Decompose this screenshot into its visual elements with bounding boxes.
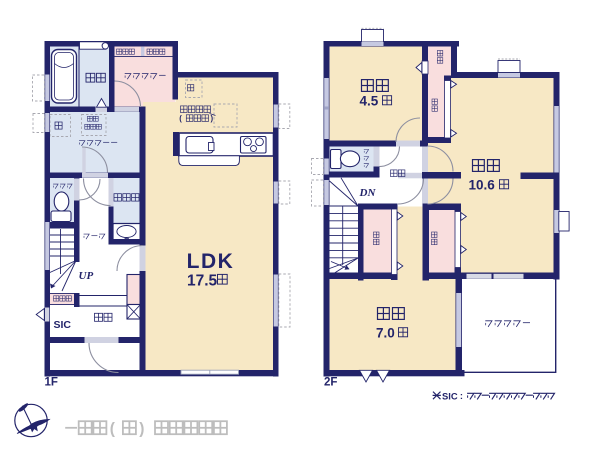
svg-text:2F: 2F bbox=[324, 377, 337, 389]
svg-text:1F: 1F bbox=[45, 377, 58, 389]
svg-text:UP: UP bbox=[79, 270, 94, 282]
svg-text:7.0: 7.0 bbox=[376, 326, 395, 341]
svg-text::: : bbox=[460, 390, 463, 401]
svg-text:(: ( bbox=[179, 114, 182, 123]
svg-text:LDK: LDK bbox=[187, 250, 235, 273]
svg-text:): ) bbox=[211, 114, 214, 123]
svg-text:SIC: SIC bbox=[54, 319, 72, 331]
svg-text:(: ( bbox=[110, 421, 116, 438]
svg-text:SIC: SIC bbox=[442, 390, 458, 401]
svg-text:): ) bbox=[139, 421, 144, 438]
svg-text:4.5: 4.5 bbox=[360, 94, 379, 109]
svg-text:10.6: 10.6 bbox=[469, 178, 496, 193]
svg-text:DN: DN bbox=[359, 187, 377, 199]
svg-text:17.5: 17.5 bbox=[187, 272, 218, 289]
